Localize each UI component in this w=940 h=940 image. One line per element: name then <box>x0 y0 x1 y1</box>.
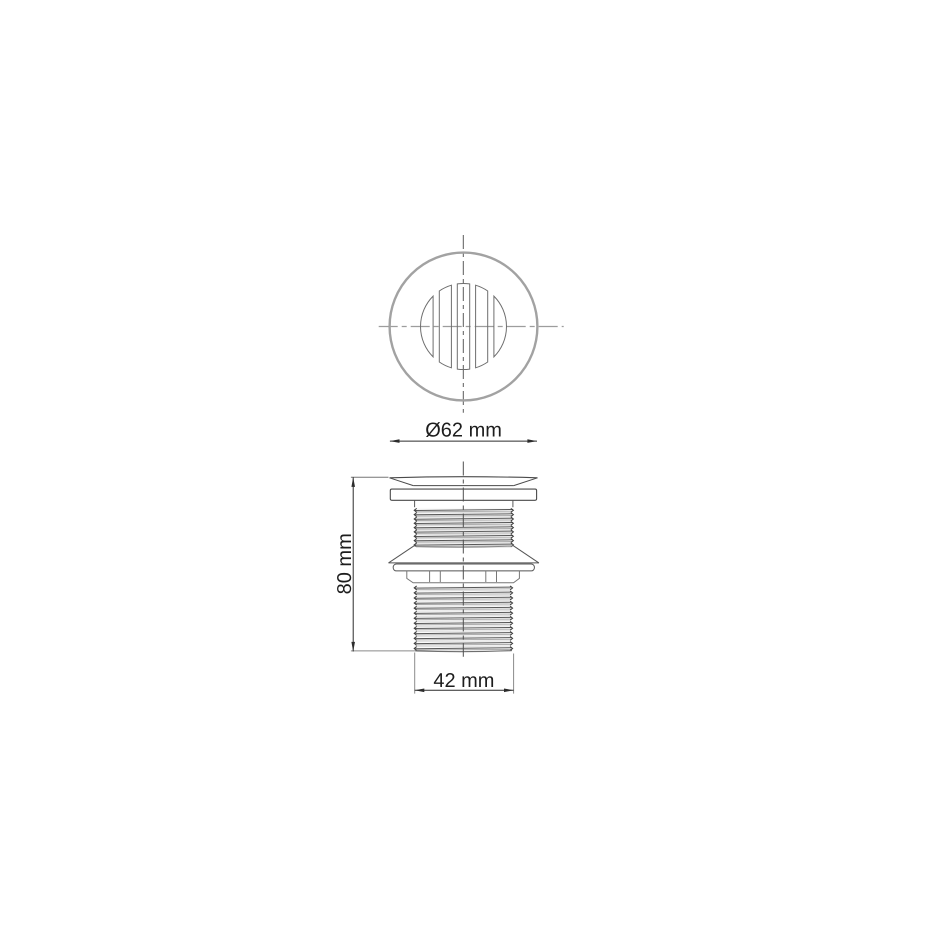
svg-text:42 mm: 42 mm <box>433 670 494 692</box>
svg-text:80 mm: 80 mm <box>334 533 356 594</box>
svg-text:Ø62 mm: Ø62 mm <box>425 420 502 442</box>
